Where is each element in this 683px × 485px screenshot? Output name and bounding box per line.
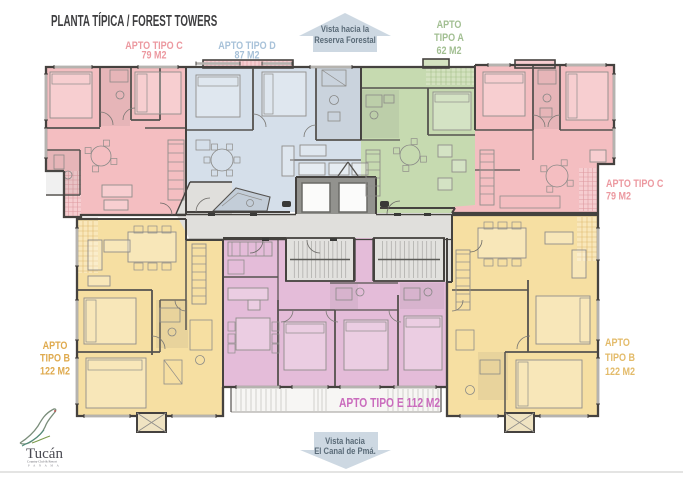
svg-text:87 M2: 87 M2 bbox=[234, 50, 259, 62]
svg-text:APTO: APTO bbox=[437, 19, 462, 31]
svg-text:El Canal de Pmá.: El Canal de Pmá. bbox=[314, 445, 376, 456]
svg-text:P A N A M A: P A N A M A bbox=[28, 464, 60, 468]
svg-text:APTO: APTO bbox=[605, 337, 630, 349]
svg-text:Vista hacia la: Vista hacia la bbox=[321, 23, 370, 34]
svg-text:Reserva Forestal: Reserva Forestal bbox=[314, 34, 376, 45]
svg-text:62 M2: 62 M2 bbox=[436, 45, 461, 57]
svg-text:TIPO B: TIPO B bbox=[40, 353, 70, 365]
svg-text:TIPO A: TIPO A bbox=[434, 32, 464, 44]
svg-text:PLANTA TÍPICA / FOREST TOWERS: PLANTA TÍPICA / FOREST TOWERS bbox=[51, 12, 217, 30]
svg-text:122 M2: 122 M2 bbox=[40, 366, 70, 378]
svg-text:APTO: APTO bbox=[43, 340, 68, 352]
svg-text:79 M2: 79 M2 bbox=[606, 191, 631, 203]
svg-text:122 M2: 122 M2 bbox=[605, 366, 635, 378]
svg-text:APTO TIPO E 112 M2: APTO TIPO E 112 M2 bbox=[339, 397, 440, 410]
svg-text:79 M2: 79 M2 bbox=[141, 50, 166, 62]
svg-text:TIPO B: TIPO B bbox=[605, 352, 635, 364]
svg-text:APTO TIPO C: APTO TIPO C bbox=[606, 178, 663, 190]
